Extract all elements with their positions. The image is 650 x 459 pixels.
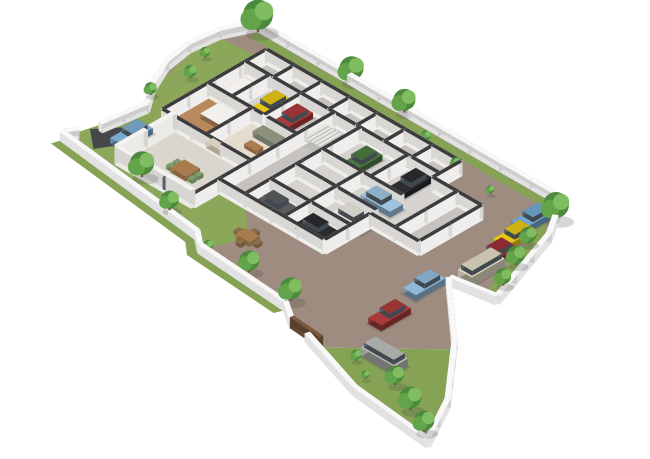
tree-pocket-3-shadow	[497, 284, 515, 291]
shrub-top-1-canopy	[425, 131, 431, 137]
shrub-finger-2-canopy	[365, 371, 370, 376]
tree-finger-1-canopy	[393, 367, 404, 378]
shrub-finger-1-shadow	[352, 360, 363, 365]
shrub-southband-canopy	[208, 240, 214, 246]
tree-lawn-1-canopy	[139, 153, 154, 168]
tree-pocket-1-canopy	[526, 228, 536, 238]
tree-top-right-canopy	[402, 90, 416, 104]
shrub-curve-2-shadow	[186, 77, 199, 82]
scene-canvas	[0, 0, 650, 459]
shrub-curve-3-shadow	[201, 57, 212, 62]
tree-finger-3-canopy	[422, 412, 434, 424]
shrub-finger-2-shadow	[362, 379, 371, 383]
floorplan-3d-render	[0, 0, 650, 459]
tree-top-mid-canopy	[349, 58, 364, 73]
tree-finger-3-shadow	[416, 430, 438, 439]
tree-finger-2-canopy	[408, 388, 422, 402]
tree-pocket-3-canopy	[501, 269, 511, 279]
tree-lawn-2-canopy	[168, 192, 179, 203]
tree-pocket-1-shadow	[522, 242, 540, 249]
shrub-curve-3-canopy	[204, 47, 210, 53]
shrub-curve-2-canopy	[189, 66, 196, 73]
tree-east-corner-canopy	[553, 194, 569, 210]
tree-top-corner-canopy	[255, 2, 274, 21]
tree-pocket-2-shadow	[509, 263, 529, 271]
tree-pocket-2-canopy	[514, 247, 525, 258]
tree-southband-2-canopy	[288, 279, 302, 293]
shrub-finger-1-canopy	[355, 350, 361, 356]
shrub-top-3-shadow	[487, 194, 496, 198]
shrub-top-3-canopy	[489, 186, 494, 191]
shrub-curve-1-canopy	[149, 83, 156, 90]
tree-southband-1-canopy	[247, 252, 259, 264]
shrub-curve-1-shadow	[146, 94, 159, 99]
